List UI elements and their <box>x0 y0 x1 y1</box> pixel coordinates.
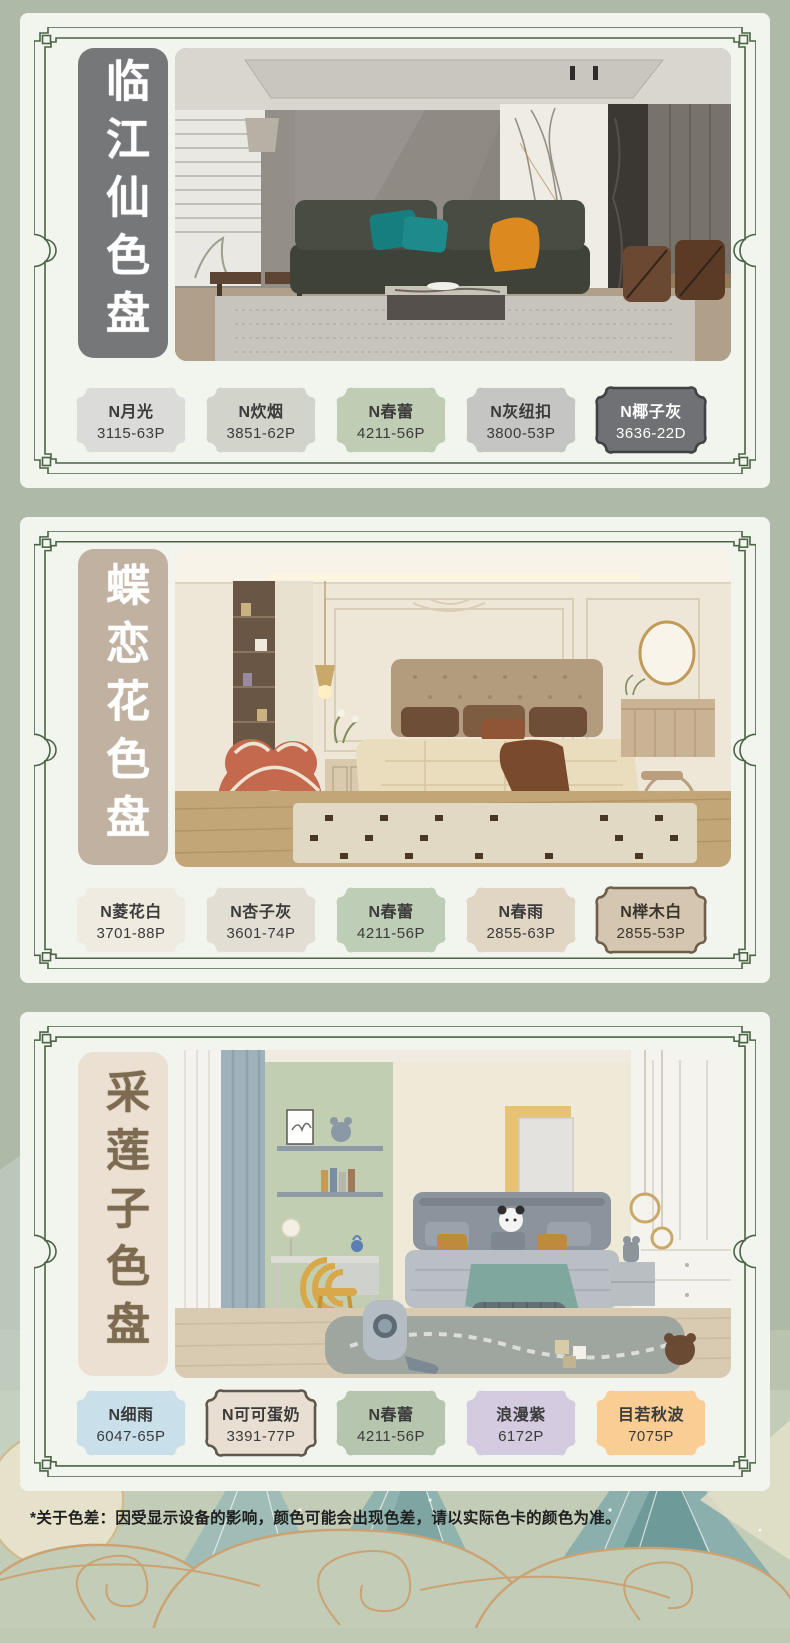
swatch-name: N可可蛋奶 <box>222 1401 300 1425</box>
swatch-labels: N菱花白 3701-88P <box>77 888 185 952</box>
swatch-labels: N月光 3115-63P <box>77 388 185 452</box>
swatch-name: N春蕾 <box>368 398 413 422</box>
swatch-code: 3115-63P <box>97 425 165 442</box>
color-swatch: N炊烟 3851-62P <box>207 388 315 452</box>
swatch-labels: N炊烟 3851-62P <box>207 388 315 452</box>
color-swatch: N春蕾 4211-56P <box>337 388 445 452</box>
swatch-labels: 浪漫紫 6172P <box>467 1391 575 1455</box>
swatch-code: 2855-63P <box>486 925 555 942</box>
swatch-labels: N椰子灰 3636-22D <box>597 388 705 452</box>
panel-title: 临江仙色盘 <box>101 58 145 348</box>
swatch-row: N菱花白 3701-88P N杏子灰 3601-74P N春蕾 4211-56P <box>77 888 706 952</box>
room-photo-cream-bedroom <box>175 547 731 867</box>
color-disclaimer-note: *关于色差：因受显示设备的影响，颜色可能会出现色差，请以实际色卡的颜色为准。 <box>30 1506 621 1528</box>
swatch-labels: N春蕾 4211-56P <box>337 888 445 952</box>
color-swatch: N春雨 2855-63P <box>467 888 575 952</box>
swatch-code: 3636-22D <box>616 425 686 442</box>
color-swatch: N杏子灰 3601-74P <box>207 888 315 952</box>
swatch-row: N月光 3115-63P N炊烟 3851-62P N春蕾 4211-56P <box>77 388 706 452</box>
swatch-name: N炊烟 <box>238 398 283 422</box>
color-swatch: 目若秋波 7075P <box>597 1391 705 1455</box>
swatch-name: N菱花白 <box>100 898 162 922</box>
color-swatch-highlighted: N椰子灰 3636-22D <box>597 388 705 452</box>
panel-title-block: 蝶恋花色盘 <box>78 549 168 865</box>
swatch-code: 3701-88P <box>96 925 165 942</box>
swatch-name: 浪漫紫 <box>496 1401 546 1425</box>
color-swatch: N春蕾 4211-56P <box>337 888 445 952</box>
swatch-name: N春蕾 <box>368 1401 413 1425</box>
color-swatch: N菱花白 3701-88P <box>77 888 185 952</box>
color-swatch: N灰纽扣 3800-53P <box>467 388 575 452</box>
room-photo-living-room <box>175 48 731 361</box>
swatch-labels: 目若秋波 7075P <box>597 1391 705 1455</box>
room-photo-kids-bedroom <box>175 1050 731 1378</box>
color-swatch: N春蕾 4211-56P <box>337 1391 445 1455</box>
palette-panel-cailianzi: 采莲子色盘 <box>20 1012 770 1491</box>
panel-title: 采莲子色盘 <box>101 1069 145 1359</box>
swatch-row: N细雨 6047-65P N可可蛋奶 3391-77P N春蕾 4211-56P <box>77 1391 706 1455</box>
swatch-name: N椰子灰 <box>620 398 682 422</box>
swatch-name: N春蕾 <box>368 898 413 922</box>
swatch-code: 2855-53P <box>616 925 685 942</box>
palette-panel-dielianhua: 蝶恋花色盘 <box>20 517 770 983</box>
swatch-labels: N春蕾 4211-56P <box>337 1391 445 1455</box>
color-swatch-highlighted: N榉木白 2855-53P <box>597 888 705 952</box>
swatch-code: 3601-74P <box>226 925 295 942</box>
swatch-name: N月光 <box>108 398 153 422</box>
swatch-labels: N细雨 6047-65P <box>77 1391 185 1455</box>
swatch-labels: N春蕾 4211-56P <box>337 388 445 452</box>
swatch-labels: N榉木白 2855-53P <box>597 888 705 952</box>
swatch-code: 4211-56P <box>357 1428 425 1445</box>
color-swatch: 浪漫紫 6172P <box>467 1391 575 1455</box>
color-swatch: N月光 3115-63P <box>77 388 185 452</box>
swatch-name: N春雨 <box>498 898 543 922</box>
swatch-code: 3851-62P <box>226 425 295 442</box>
swatch-code: 6172P <box>498 1428 544 1445</box>
swatch-labels: N可可蛋奶 3391-77P <box>207 1391 315 1455</box>
swatch-name: 目若秋波 <box>618 1401 684 1425</box>
panel-title-block: 采莲子色盘 <box>78 1052 168 1376</box>
swatch-name: N细雨 <box>108 1401 153 1425</box>
swatch-code: 3391-77P <box>226 1428 295 1445</box>
swatch-labels: N灰纽扣 3800-53P <box>467 388 575 452</box>
swatch-code: 3800-53P <box>486 425 555 442</box>
swatch-labels: N春雨 2855-63P <box>467 888 575 952</box>
color-swatch: N细雨 6047-65P <box>77 1391 185 1455</box>
swatch-code: 6047-65P <box>96 1428 165 1445</box>
swatch-code: 4211-56P <box>357 925 425 942</box>
swatch-code: 7075P <box>628 1428 674 1445</box>
swatch-name: N杏子灰 <box>230 898 292 922</box>
swatch-name: N榉木白 <box>620 898 682 922</box>
swatch-name: N灰纽扣 <box>490 398 552 422</box>
panel-title-block: 临江仙色盘 <box>78 48 168 358</box>
swatch-code: 4211-56P <box>357 425 425 442</box>
panel-title: 蝶恋花色盘 <box>101 562 145 852</box>
palette-panel-linjiangxian: 临江仙色盘 <box>20 13 770 488</box>
swatch-labels: N杏子灰 3601-74P <box>207 888 315 952</box>
paint-palette-poster: 临江仙色盘 <box>0 0 790 1643</box>
color-swatch-highlighted: N可可蛋奶 3391-77P <box>207 1391 315 1455</box>
